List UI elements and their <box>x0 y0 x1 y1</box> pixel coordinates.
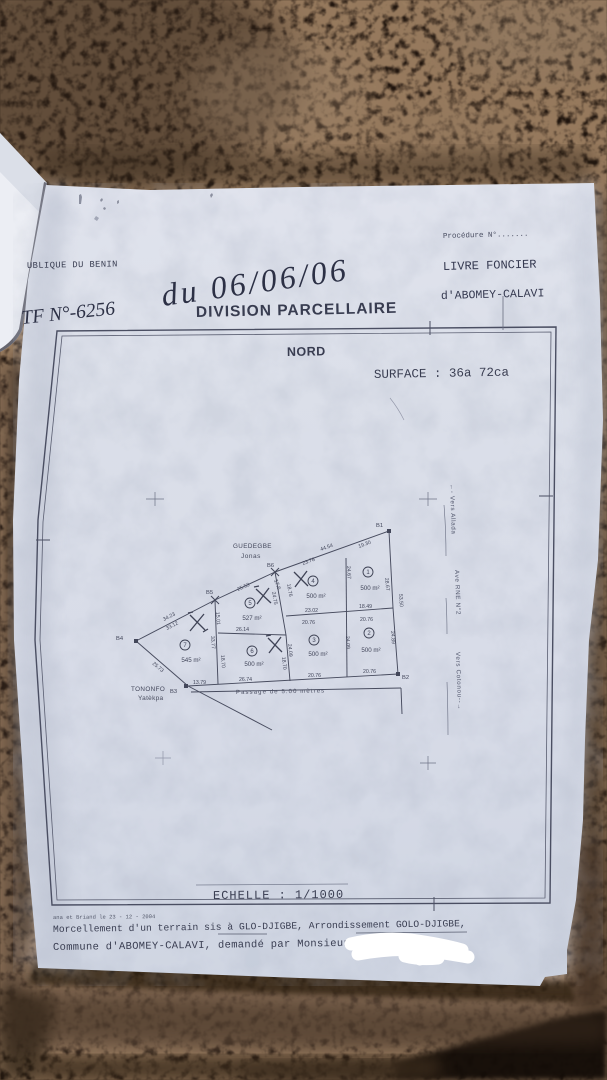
svg-text:GUEDEGBE: GUEDEGBE <box>233 543 272 550</box>
svg-text:26.14: 26.14 <box>236 627 249 633</box>
svg-text:500 m²: 500 m² <box>360 585 379 592</box>
svg-text:20.76: 20.76 <box>302 620 315 626</box>
svg-text:Yatèkpa: Yatèkpa <box>138 695 164 702</box>
svg-text:LIVRE FONCIER: LIVRE FONCIER <box>443 258 537 274</box>
svg-text:500 m²: 500 m² <box>306 593 325 600</box>
svg-text:TONONFO: TONONFO <box>131 686 165 693</box>
svg-text:B6: B6 <box>267 563 274 569</box>
svg-text:53.50: 53.50 <box>397 594 404 607</box>
svg-text:SURFACE : 36a 72ca: SURFACE : 36a 72ca <box>374 366 510 382</box>
svg-text:20.76: 20.76 <box>360 617 373 623</box>
svg-text:B3: B3 <box>170 689 177 695</box>
svg-text:ECHELLE : 1/1000: ECHELLE : 1/1000 <box>213 888 344 903</box>
svg-text:527 m²: 527 m² <box>242 615 261 622</box>
svg-text:B5: B5 <box>206 590 213 596</box>
svg-text:545 m²: 545 m² <box>181 657 200 664</box>
svg-text:B1: B1 <box>376 523 383 529</box>
svg-text:ana et Briand le 23 - 12 - 20: ana et Briand le 23 - 12 - 2004 <box>53 913 156 921</box>
svg-text:UBLIQUE DU BENIN: UBLIQUE DU BENIN <box>27 259 118 271</box>
svg-text:24.09: 24.09 <box>344 636 351 649</box>
svg-text:33.77: 33.77 <box>209 636 216 649</box>
svg-text:500 m²: 500 m² <box>361 647 380 654</box>
svg-text:18.49: 18.49 <box>359 604 372 610</box>
svg-text:500 m²: 500 m² <box>244 661 263 668</box>
svg-text:24.67: 24.67 <box>345 566 352 579</box>
svg-text:20.76: 20.76 <box>308 673 321 679</box>
svg-text:NORD: NORD <box>287 344 326 359</box>
svg-text:24.89: 24.89 <box>389 631 396 644</box>
svg-text:26.74: 26.74 <box>239 677 252 683</box>
svg-text:d'ABOMEY-CALAVI: d'ABOMEY-CALAVI <box>441 287 545 303</box>
svg-text:15.01: 15.01 <box>214 612 221 625</box>
svg-text:Jonas: Jonas <box>241 553 261 560</box>
svg-text:18.70: 18.70 <box>219 655 226 668</box>
svg-text:B2: B2 <box>402 675 409 681</box>
svg-text:500 m²: 500 m² <box>308 651 327 658</box>
svg-text:23.02: 23.02 <box>305 608 318 614</box>
svg-text:B4: B4 <box>116 636 124 642</box>
svg-text:13.79: 13.79 <box>193 680 206 686</box>
svg-text:20.76: 20.76 <box>363 669 376 675</box>
